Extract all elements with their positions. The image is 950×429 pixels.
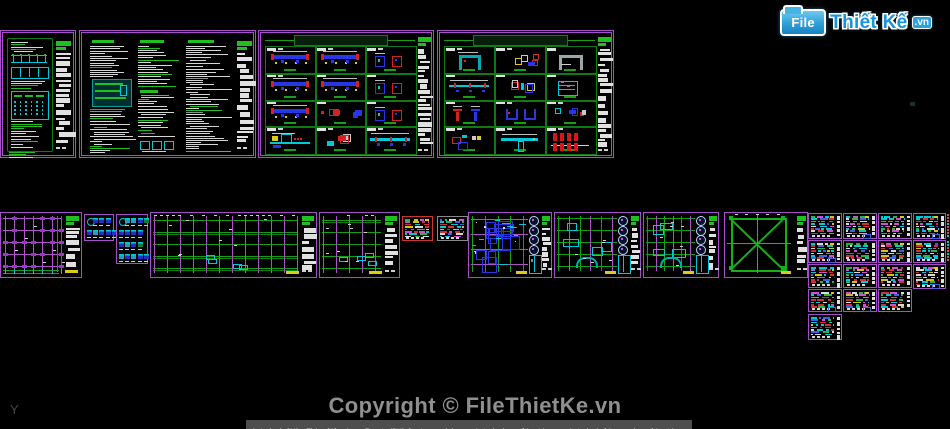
data-dash — [936, 226, 938, 228]
data-dash — [900, 274, 904, 276]
sheet-sched-r5c1[interactable] — [808, 314, 842, 340]
titleblock-row — [709, 246, 716, 248]
data-dash — [890, 223, 892, 225]
dot — [42, 113, 44, 115]
footer-dash — [416, 237, 419, 239]
dim-tick — [33, 269, 34, 274]
text-line — [138, 50, 157, 51]
data-dash — [833, 317, 834, 319]
sheet-plan-brace[interactable] — [724, 212, 808, 278]
label-dash — [575, 254, 578, 255]
sheet-sched-r2c1[interactable] — [808, 240, 842, 263]
sheet-sched-r3c1[interactable] — [808, 264, 842, 288]
data-dash — [821, 221, 825, 223]
tick — [285, 89, 287, 91]
dim-tick — [61, 269, 62, 274]
logo-brand-thiet: Thiết — [830, 12, 877, 33]
data-dash — [811, 248, 815, 250]
rebar-dash — [495, 220, 499, 221]
strip-block — [872, 232, 875, 235]
dim-dash — [172, 215, 175, 216]
data-dash — [916, 277, 922, 279]
data-dash — [854, 279, 857, 281]
titleblock-green — [66, 222, 74, 225]
titleblock-row — [56, 94, 69, 97]
data-dash — [832, 253, 834, 255]
dot — [475, 252, 477, 254]
strip-block — [872, 277, 875, 279]
label-dash — [53, 250, 56, 251]
data-dash — [440, 219, 442, 221]
data-dash — [855, 294, 858, 296]
cell-label-chip — [496, 102, 505, 105]
titleblock-row — [709, 234, 716, 237]
data-dash — [846, 267, 852, 269]
text-line — [190, 97, 208, 98]
slab-panel — [601, 242, 612, 252]
label-dash — [345, 261, 348, 262]
titleblock-row — [710, 228, 715, 231]
data-dash — [924, 243, 931, 245]
data-dash — [899, 255, 904, 257]
data-dash — [853, 267, 859, 269]
sheet-sched-r3c2[interactable] — [843, 264, 877, 288]
data-dash — [861, 267, 867, 269]
sheet-plan-framing-2[interactable] — [319, 212, 400, 278]
highlight — [900, 243, 904, 245]
label-dash — [219, 240, 222, 241]
data-dash — [817, 216, 823, 218]
cell-label-chip — [457, 128, 462, 130]
dim-line — [471, 106, 480, 107]
text-line — [90, 48, 120, 49]
dot — [476, 222, 478, 224]
titleblock-row — [240, 69, 249, 73]
sheet-sched-r2c4[interactable] — [913, 240, 946, 263]
symbol-label — [125, 261, 129, 262]
text-line — [90, 65, 119, 66]
strip-block — [837, 221, 840, 223]
symbol-box — [125, 218, 130, 223]
titleblock-row — [797, 259, 805, 263]
cad-canvas[interactable]: ■■■ ■■■■ ■■ ■■■■ ■■■ ■■■■■ ■■ ■■ ■■■ ■■ — [0, 0, 950, 429]
symbol-label — [93, 225, 97, 226]
data-dash — [822, 297, 829, 299]
footer-dash — [857, 308, 860, 310]
data-dash — [934, 272, 938, 274]
sheet-plan-dense[interactable] — [468, 212, 552, 278]
data-dash — [811, 294, 814, 296]
sheet-sched-r4c1[interactable] — [808, 289, 842, 312]
titleblock-row — [797, 241, 803, 244]
data-dash — [826, 281, 829, 283]
symbol-label — [138, 225, 142, 226]
dim-line — [502, 134, 536, 135]
footer-dash — [852, 235, 855, 237]
strip-block — [872, 306, 875, 310]
edge-bit — [947, 232, 949, 234]
data-dash — [821, 228, 824, 230]
data-dash — [886, 272, 893, 274]
truss-web — [45, 56, 46, 62]
rebar-dot — [378, 86, 380, 89]
sheet-plan-slab-1[interactable] — [554, 212, 641, 278]
text-line — [138, 99, 149, 100]
strip-block — [837, 267, 840, 270]
text-line — [90, 70, 117, 71]
strip-block — [837, 335, 840, 339]
beam-foot — [281, 87, 284, 90]
part — [515, 58, 522, 65]
titleblock-green — [418, 43, 426, 46]
text-line — [186, 117, 232, 118]
sheet-sched-r1c4[interactable] — [913, 213, 946, 239]
data-dash — [881, 304, 886, 306]
sheet-notes-b[interactable] — [79, 30, 256, 158]
label-dash — [583, 258, 586, 259]
titleblock-row — [598, 142, 607, 147]
label-dash — [681, 226, 684, 227]
data-dash — [894, 294, 899, 296]
sheet-sched-r1c3[interactable] — [878, 213, 912, 239]
data-dash — [825, 243, 828, 245]
table-div — [29, 67, 30, 77]
label-dash — [602, 242, 605, 243]
data-dash — [920, 223, 923, 225]
titleblock-row — [600, 83, 613, 86]
dot — [469, 90, 472, 93]
text-line — [186, 112, 203, 113]
strip-block — [907, 300, 910, 303]
data-dash — [846, 274, 849, 276]
detail-bubble — [529, 226, 539, 236]
column-marker — [3, 265, 8, 268]
data-dash — [457, 226, 460, 228]
titleblock-row — [56, 61, 70, 66]
tick — [335, 62, 337, 64]
data-dash — [817, 243, 823, 245]
titleblock-row — [237, 136, 248, 138]
dim-tick — [5, 269, 6, 274]
titleblock-green — [598, 43, 606, 46]
dim-tick — [42, 269, 43, 274]
sheet-details-d[interactable]: ■■■■ ■■ ■■ ■■■ ■■ — [437, 30, 614, 158]
data-dash — [826, 253, 831, 255]
footer-dash — [451, 237, 454, 239]
titleblock-green — [631, 222, 636, 225]
text-line — [90, 51, 128, 52]
data-dash — [405, 226, 413, 228]
data-dash — [890, 304, 896, 306]
data-dash — [405, 233, 407, 235]
sheet-plan-foundation[interactable] — [0, 212, 82, 278]
text-line — [186, 66, 203, 67]
titleblock-row — [631, 255, 639, 259]
titleblock-row — [56, 53, 71, 55]
data-dash — [902, 223, 904, 225]
footer-dash — [817, 235, 820, 237]
dim-line — [371, 133, 409, 134]
data-dash — [832, 297, 834, 299]
data-dash — [922, 281, 928, 283]
titleblock-sign — [709, 268, 713, 270]
data-dash — [846, 269, 849, 271]
sheet-schedule-gray[interactable] — [437, 216, 468, 241]
cell-caption — [514, 69, 526, 71]
titleblock-row — [709, 240, 713, 245]
symbol-box — [119, 254, 124, 259]
data-dash — [846, 292, 851, 294]
sheet-details-c[interactable]: ■■■ ■■■■ ■■ ■■■■ ■■■ ■ — [258, 30, 434, 158]
text-line — [94, 132, 130, 133]
strip-block — [941, 234, 944, 239]
dot — [25, 105, 27, 107]
data-dash — [895, 221, 899, 223]
footer-dash — [892, 259, 895, 261]
dim-dash — [238, 215, 241, 216]
highlight-bar — [605, 271, 616, 274]
titleblock-row — [600, 134, 612, 138]
titleblock-row — [240, 120, 254, 124]
data-dash — [928, 230, 931, 232]
data-dash — [881, 253, 886, 255]
text-line — [141, 97, 174, 98]
data-dash — [449, 231, 452, 233]
sheet-plan-slab-2[interactable] — [643, 212, 719, 278]
data-dash — [424, 224, 429, 226]
sheet-legend-2[interactable] — [116, 214, 148, 264]
text-line — [186, 54, 228, 55]
symbol-label — [131, 249, 135, 250]
slab-opening — [365, 253, 374, 258]
cell-label-chip — [367, 102, 376, 105]
data-dash — [846, 218, 849, 220]
strip-block — [907, 220, 910, 222]
dim-dash — [756, 214, 759, 215]
beam-line — [153, 270, 298, 271]
titleblock-green — [385, 216, 397, 221]
tick — [405, 137, 407, 142]
rebar-dash — [510, 227, 517, 228]
tick — [355, 62, 357, 64]
sheet-sched-r1c1[interactable] — [808, 213, 842, 239]
titleblock-row — [598, 139, 605, 141]
data-dash — [864, 243, 867, 245]
data-dash — [925, 253, 927, 255]
red-bar — [567, 143, 571, 151]
data-dash — [823, 331, 829, 333]
sheet-plan-framing-1[interactable] — [150, 212, 317, 278]
strip-block — [941, 279, 944, 283]
column-marker — [50, 241, 55, 244]
data-dash — [811, 250, 816, 252]
data-dash — [896, 253, 902, 255]
titleblock-row — [66, 254, 75, 259]
text-line — [90, 46, 124, 47]
sheet-sched-r3c4[interactable] — [913, 264, 946, 289]
data-dash — [858, 226, 861, 228]
text-line — [11, 49, 36, 50]
slab-opening — [368, 261, 377, 266]
data-dash — [820, 218, 828, 220]
fig-dash — [142, 151, 166, 152]
data-dash — [409, 233, 417, 235]
data-dash — [902, 248, 904, 250]
dot — [36, 113, 38, 115]
data-dash — [881, 277, 887, 279]
symbol-label — [106, 225, 110, 226]
titleblock-row — [237, 64, 246, 68]
dot — [390, 143, 393, 146]
data-dash — [923, 218, 929, 220]
sheet-sched-r1c2[interactable] — [843, 213, 877, 239]
titleblock-row — [302, 254, 314, 259]
data-dash — [417, 229, 424, 231]
titleblock-row — [420, 118, 430, 120]
grid-line-v — [193, 216, 194, 273]
data-dash — [852, 281, 857, 283]
grid-line-v — [647, 216, 648, 271]
titleblock-row — [420, 61, 430, 63]
sheet-sched-r3c3[interactable] — [878, 264, 912, 288]
titleblock-row — [798, 247, 807, 252]
dim-dash — [365, 215, 368, 216]
titleblock-row — [418, 122, 432, 127]
part — [555, 108, 560, 113]
beam-bar — [322, 55, 358, 59]
highlight — [830, 243, 834, 245]
data-dash — [901, 292, 904, 294]
titleblock-sign — [803, 268, 807, 270]
data-dash — [881, 292, 889, 294]
sheet-sched-r2c3[interactable] — [878, 240, 912, 263]
data-dash — [447, 229, 450, 231]
titleblock-row — [418, 104, 430, 106]
data-dash — [853, 269, 856, 271]
dim-dash — [280, 215, 283, 216]
text-line — [11, 133, 26, 134]
strip-block — [941, 216, 944, 221]
data-dash — [863, 277, 869, 279]
data-dash — [881, 299, 888, 301]
data-dash — [930, 253, 934, 255]
tick — [275, 89, 277, 91]
titleblock-row — [56, 89, 70, 92]
data-dash — [425, 226, 429, 228]
sheet-notes-a[interactable] — [0, 30, 76, 158]
block — [281, 134, 292, 143]
data-dash — [889, 269, 894, 271]
sheet-title-bar: ■■■ ■■■■ ■■ ■■■■ ■■■ ■ — [294, 35, 388, 46]
footer-dash — [927, 285, 930, 287]
titleblock-row — [418, 133, 425, 136]
cursor-artifact — [910, 102, 915, 106]
data-dash — [846, 297, 854, 299]
column-marker — [3, 241, 8, 244]
cell-caption — [334, 69, 346, 71]
symbol-box — [138, 230, 143, 235]
data-dash — [881, 216, 883, 218]
data-dash — [831, 304, 834, 306]
label-dash — [186, 220, 189, 221]
symbol-box — [131, 242, 136, 247]
data-dash — [811, 226, 816, 228]
dim-dash — [735, 214, 738, 215]
red-bar — [553, 133, 557, 141]
data-dash — [819, 255, 827, 257]
sheet-sched-r2c2[interactable] — [843, 240, 877, 263]
data-dash — [881, 245, 885, 247]
data-dash — [846, 272, 853, 274]
cell-label-chip — [507, 128, 512, 130]
tick — [305, 62, 307, 64]
edge-bit — [947, 235, 949, 237]
highlight-bar — [65, 270, 78, 273]
titleblock-green — [631, 216, 639, 221]
data-dash — [923, 277, 927, 279]
text-line — [11, 141, 38, 142]
data-dash — [414, 231, 418, 233]
sheet-sched-r4c2[interactable] — [843, 289, 877, 312]
footer-dash — [421, 237, 424, 239]
data-dash — [929, 272, 933, 274]
data-dash — [832, 223, 834, 225]
data-dash — [885, 226, 890, 228]
grid-line-v — [336, 216, 337, 273]
text-line — [138, 67, 156, 68]
text-line — [186, 87, 202, 88]
dim-line — [458, 52, 478, 53]
sheet-legend-1[interactable] — [84, 214, 114, 241]
strip-block — [941, 222, 944, 226]
beam-line — [322, 268, 381, 269]
bubble-mark — [532, 238, 534, 240]
data-dash — [462, 221, 464, 223]
truss-node — [44, 54, 46, 56]
sheet-sched-r4c3[interactable] — [878, 289, 912, 312]
beam-line — [322, 232, 381, 233]
titleblock-row — [598, 96, 606, 101]
titleblock-row — [56, 110, 71, 115]
footer-dash — [887, 259, 890, 261]
beam-cap — [321, 81, 324, 87]
highlight — [934, 267, 938, 269]
footer-dash — [817, 336, 820, 338]
sheet-schedule-red[interactable] — [402, 216, 433, 241]
titleblock-sign — [548, 268, 552, 270]
titleblock-sign — [302, 270, 306, 272]
symbol-box — [138, 218, 143, 223]
text-line — [186, 63, 220, 64]
rebar-dot — [395, 86, 397, 88]
folder-icon: File — [780, 9, 826, 36]
slab-panel — [563, 239, 578, 247]
tick — [285, 62, 287, 64]
data-dash — [440, 231, 447, 233]
footer-dash — [822, 235, 825, 237]
titleblock-row — [542, 252, 548, 257]
data-dash — [891, 279, 895, 281]
titleblock-row — [387, 228, 395, 232]
data-dash — [856, 304, 859, 306]
beam-foot — [346, 87, 349, 90]
data-dash — [440, 226, 446, 228]
dim-dash — [202, 215, 205, 216]
symbol-label — [138, 237, 142, 238]
titleblock-row — [418, 107, 432, 110]
edge-bit — [947, 247, 949, 249]
detail-bubble — [696, 216, 706, 226]
